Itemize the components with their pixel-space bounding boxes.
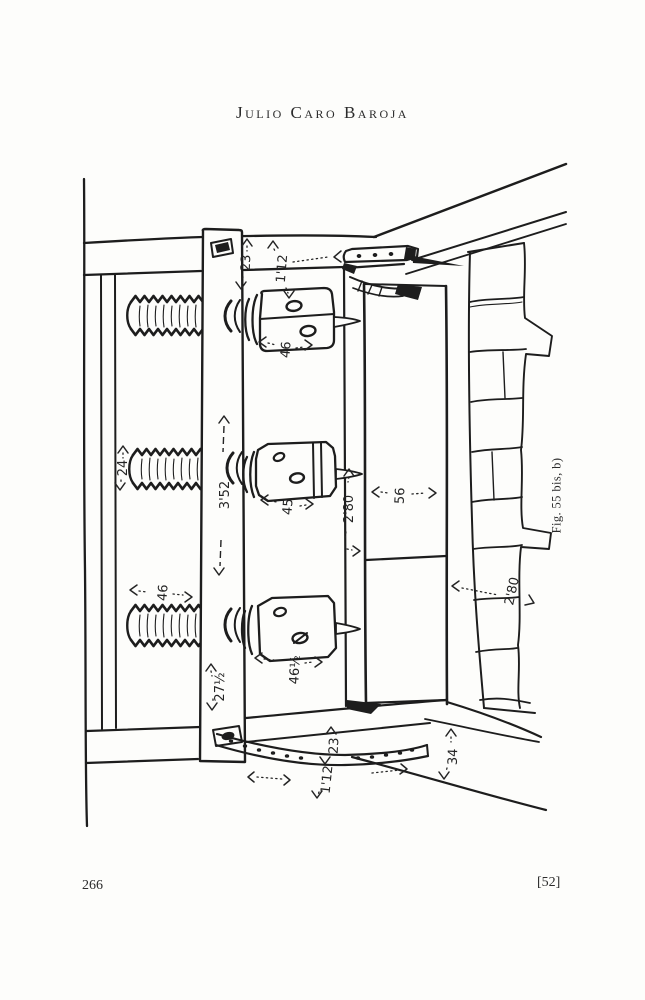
bolt-dot — [373, 253, 378, 257]
svg-text:34: 34 — [446, 748, 462, 765]
svg-text:46½: 46½ — [287, 655, 304, 685]
nut-top — [245, 288, 360, 351]
dim-34: 34 — [439, 729, 461, 779]
page-number: 266 — [82, 878, 103, 894]
dim-112-bottom: 1'12 — [312, 765, 336, 798]
bolt-dot — [389, 252, 394, 256]
svg-text:46: 46 — [155, 584, 171, 602]
dim-56: 56 — [372, 487, 436, 504]
screw-middle — [129, 449, 205, 489]
nut-bottom — [242, 596, 360, 661]
figure-caption: Fig. 55 bis, b) — [550, 435, 565, 557]
page-header: Julio Caro Baroja — [0, 103, 645, 123]
base-bands — [86, 700, 446, 763]
figure-drawing: 23 1'12 46 24 — [0, 0, 645, 1000]
svg-text:45: 45 — [280, 498, 296, 516]
svg-text:3'52: 3'52 — [218, 481, 233, 509]
svg-text:24: 24 — [116, 460, 131, 477]
roof-diagonal — [374, 164, 566, 237]
dim-280-wall: 2'80 — [452, 576, 534, 607]
leader-bottom-left — [248, 772, 290, 785]
bolt-dot — [357, 254, 362, 258]
svg-text:23: 23 — [239, 254, 255, 271]
dim-24: 24 — [115, 446, 131, 490]
svg-text:1'12: 1'12 — [319, 765, 337, 795]
left-post — [101, 275, 102, 729]
screw-bottom — [127, 605, 203, 646]
leader-bottom-right — [372, 764, 407, 774]
svg-text:1'12: 1'12 — [274, 254, 291, 284]
bed-front-edge — [344, 268, 346, 706]
folio-number: [52] — [537, 875, 560, 891]
screw-top — [127, 296, 203, 335]
svg-text:56: 56 — [393, 487, 409, 504]
svg-text:2'80: 2'80 — [342, 495, 357, 523]
svg-text:27½: 27½ — [213, 672, 228, 701]
dim-46-screw: 46 — [130, 584, 192, 602]
svg-text:46: 46 — [278, 341, 294, 359]
stone-wall — [468, 243, 552, 713]
svg-text:23: 23 — [327, 737, 343, 754]
book-page: Julio Caro Baroja — [0, 0, 645, 1000]
